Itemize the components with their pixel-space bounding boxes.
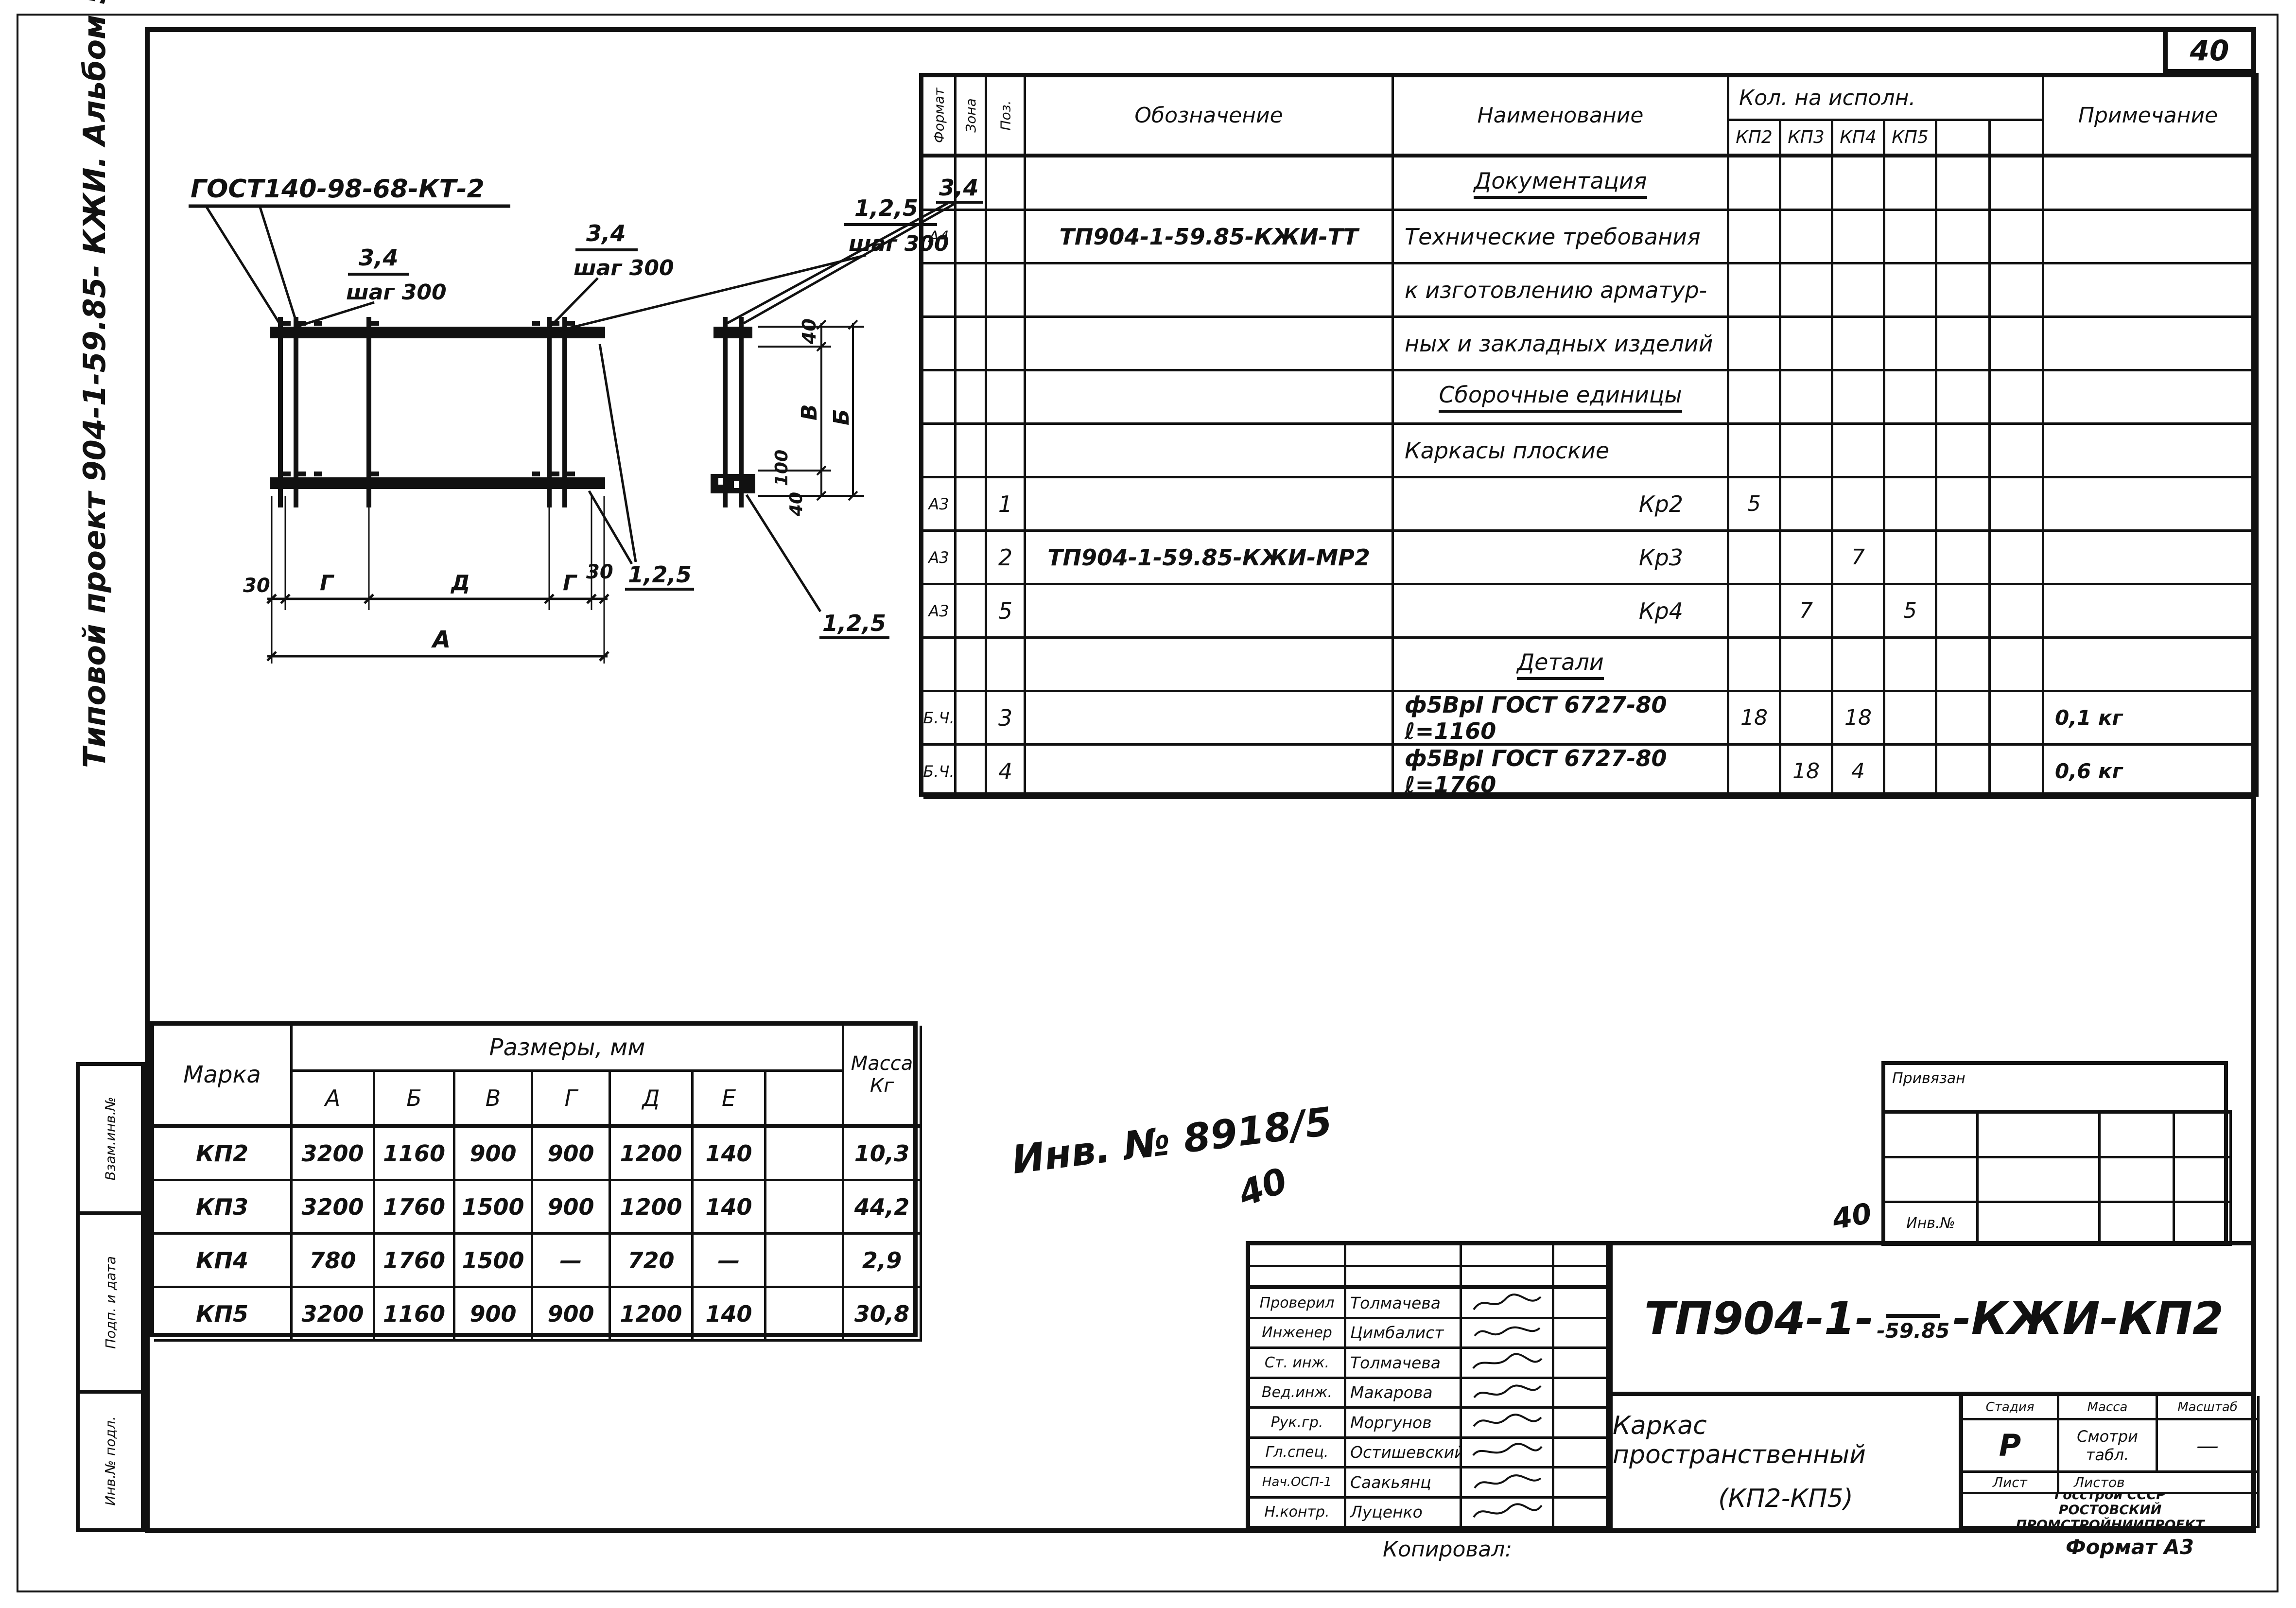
signature-table: Проверил Толмачева Инженер Цимбалист Ст.… [1250,1245,1608,1528]
size-cell [766,1128,844,1181]
spec-col-extra2 [1991,121,2044,157]
strip-cell-vzam: Взам.инв.№ [76,1062,145,1215]
page-number-box: 40 [2163,27,2256,74]
size-cell: 1760 [375,1235,455,1288]
bottom-chord-bar [270,477,605,489]
spec-designation-mr2: ТП904-1-59.85-КЖИ-МР2 [1026,532,1394,585]
size-cell: 1200 [611,1181,694,1235]
size-cell-mass: 2,9 [844,1235,922,1288]
copied-by-label: Копировал: [1383,1537,1512,1562]
stamp-right-grid: Стадия Масса Масштаб Р Смотритабл. — Лис… [1959,1396,2255,1528]
size-cell: 1160 [375,1128,455,1181]
spec-col-kp5: КП5 [1885,121,1937,157]
size-cell-mass: 10,3 [844,1128,922,1181]
callout-step-a: шаг 300 [346,280,447,305]
spec-name: Каркасы плоские [1394,425,1729,478]
spec-name: Кр4 [1394,585,1729,639]
callout-125-left: 1,2,5 [628,561,692,588]
signer-role: Ст. инж. [1250,1349,1346,1379]
dim-40-bottom: 40 [786,492,806,517]
spec-note: 0,6 кг [2044,746,2254,799]
designation-subscript: -59.85 [1877,1314,1949,1343]
stage-label: Стадия [1963,1396,2059,1420]
dim-40-top: 40 [799,318,820,345]
signer-name: Толмачева [1346,1349,1462,1379]
signer-role: Рук.гр. [1250,1409,1346,1439]
spec-qty-kp4: 7 [1833,532,1885,585]
signer-role: Проверил [1250,1289,1346,1319]
spec-name: ф5ВрI ГОСТ 6727-80 ℓ=1760 [1394,746,1729,799]
spec-pos: 1 [987,478,1026,532]
spec-designation-tt: ТП904-1-59.85-КЖИ-ТТ [1026,211,1394,264]
sizes-col-mark: Марка [154,1026,293,1128]
size-row-mark: КП4 [154,1235,293,1288]
spec-pos: 5 [987,585,1026,639]
signer-role: Нач.ОСП-1 [1250,1468,1346,1499]
spec-col-kp3: КП3 [1781,121,1833,157]
size-cell: 720 [611,1235,694,1288]
sizes-dim-d: Д [611,1072,694,1128]
dim-d: Д [450,571,470,595]
size-cell: 780 [293,1235,375,1288]
dim-30-left: 30 [243,575,270,597]
size-cell: — [533,1235,611,1288]
spec-fmt: Б.Ч. [923,746,957,799]
dim-v: В [797,404,822,420]
size-row-mark: КП3 [154,1181,293,1235]
sizes-dim-v: В [455,1072,533,1128]
spec-col-kp4: КП4 [1833,121,1885,157]
size-cell: 1760 [375,1181,455,1235]
size-cell: 1200 [611,1128,694,1181]
sizes-dim-e: Е [694,1072,766,1128]
spec-fmt: А3 [923,532,957,585]
spec-name: Кр3 [1394,532,1729,585]
sheet-label: Лист [1963,1473,2059,1494]
mass-value: Смотритабл. [2059,1420,2158,1473]
pinned-table: Привязан Инв.№ [1881,1061,2228,1246]
spec-pos: 4 [987,746,1026,799]
section-top-bar [713,327,752,338]
signature-icon [1462,1409,1554,1439]
signer-role: Вед.инж. [1250,1379,1346,1409]
size-cell: 140 [694,1288,766,1342]
scale-value: — [2158,1420,2260,1473]
spec-name: Технические требования [1394,211,1729,264]
spec-col-format: Формат [923,77,957,157]
size-cell [766,1288,844,1342]
spec-col-kp2: КП2 [1729,121,1781,157]
signer-role: Н.контр. [1250,1499,1346,1529]
spec-col-name: Наименование [1394,77,1729,157]
sizes-col-sizes: Размеры, мм [293,1026,844,1072]
size-cell-mass: 30,8 [844,1288,922,1342]
designation-suffix: -КЖИ-КП2 [1953,1293,2224,1345]
size-cell: 3200 [293,1128,375,1181]
callout-bars-125: 1,2,5 [854,195,918,221]
spec-col-note: Примечание [2044,77,2254,157]
specification-table: Формат Зона Поз. Обозначение Наименовани… [919,73,2259,797]
spec-qty-kp3: 7 [1781,585,1833,639]
spec-qty-kp3: 18 [1781,746,1833,799]
spec-col-extra1 [1937,121,1991,157]
organization-name: Госстрой СССР РОСТОВСКИЙ ПРОМСТРОЙНИИПРО… [1963,1494,2260,1528]
size-cell: 900 [533,1288,611,1342]
sizes-dim-b: Б [375,1072,455,1128]
signer-name: Луценко [1346,1499,1462,1529]
signer-name: Саакьянц [1346,1468,1462,1499]
dim-a: А [431,626,451,653]
spec-col-qty: Кол. на исполн. [1729,77,2044,121]
spec-qty-kp2: 5 [1729,478,1781,532]
spec-section-details: Детали [1394,639,1729,692]
spec-qty-kp4: 18 [1833,692,1885,746]
spec-col-designation: Обозначение [1026,77,1394,157]
section-bottom-bar [711,474,755,493]
pinned-title: Привязан [1885,1065,2232,1114]
spec-name: ных и закладных изделий [1394,318,1729,371]
title-line-2: (КП2-КП5) [1718,1484,1853,1513]
sizes-dim-g: Г [533,1072,611,1128]
document-designation: ТП904-1- -59.85 -КЖИ-КП2 [1608,1245,2255,1396]
signature-icon [1462,1439,1554,1469]
page-number: 40 [2190,34,2229,67]
pinned-inv-label: Инв.№ [1885,1203,1979,1246]
scale-label: Масштаб [2158,1396,2260,1420]
size-row-mark: КП5 [154,1288,293,1342]
spec-qty-kp2: 18 [1729,692,1781,746]
signer-name: Макарова [1346,1379,1462,1409]
spec-col-zone: Зона [957,77,987,157]
reinforcement-cage-drawing: ГОСТ140-98-68-КТ-2 3,4 шаг 300 3,4 шаг 3… [170,156,1026,700]
sizes-col-mass: МассаКг [844,1026,922,1128]
signer-name: Цимбалист [1346,1319,1462,1349]
callout-step-b: шаг 300 [574,256,674,280]
strip-cell-inv: Инв.№ подл. [76,1394,145,1532]
size-cell [766,1181,844,1235]
pinned-handwritten-40: 40 [1830,1197,1874,1236]
size-cell: 900 [455,1128,533,1181]
cross-wire-marks [283,321,575,476]
spec-qty-kp5: 5 [1885,585,1937,639]
size-cell: 900 [533,1181,611,1235]
designation-prefix: ТП904-1- [1644,1293,1874,1345]
spec-note: 0,1 кг [2044,692,2254,746]
spec-section-docs: Документация [1394,157,1729,211]
signature-icon [1462,1349,1554,1379]
signature-icon [1462,1499,1554,1529]
size-cell: 1500 [455,1235,533,1288]
dim-g-right: Г [563,571,577,595]
spec-name: ф5ВрI ГОСТ 6727-80 ℓ=1160 [1394,692,1729,746]
top-chord-bar [270,327,605,338]
spec-pos: 3 [987,692,1026,746]
spec-pos: 2 [987,532,1026,585]
size-row-mark: КП2 [154,1128,293,1181]
spec-fmt: А3 [923,585,957,639]
size-cell: 140 [694,1181,766,1235]
callout-bars-34-b: 3,4 [586,220,626,246]
size-cell: 1200 [611,1288,694,1342]
signature-icon [1462,1379,1554,1409]
size-cell [766,1235,844,1288]
spec-fmt: А3 [923,478,957,532]
spec-name: к изготовлению арматур- [1394,264,1729,318]
size-cell: 1500 [455,1181,533,1235]
size-cell: 1160 [375,1288,455,1342]
dimensions-table: Марка Размеры, мм МассаКг А Б В Г Д Е КП… [150,1021,918,1337]
left-strip: Взам.инв.№ Подп. и дата Инв.№ подл. [76,1062,145,1532]
dim-g-left: Г [320,571,334,595]
strip-cell-podp: Подп. и дата [76,1215,145,1394]
callout-125-right: 1,2,5 [822,610,886,636]
sizes-dim-a: А [293,1072,375,1128]
mass-label: Масса [2059,1396,2158,1420]
size-cell: 3200 [293,1288,375,1342]
spec-fmt: А4 [923,211,957,264]
signature-icon [1462,1319,1554,1349]
spec-qty-kp4: 4 [1833,746,1885,799]
gost-weld-label: ГОСТ140-98-68-КТ-2 [191,175,485,204]
spec-col-pos: Поз. [987,77,1026,157]
signer-role: Гл.спец. [1250,1439,1346,1469]
size-cell: 900 [533,1128,611,1181]
dim-100: 100 [772,450,792,486]
title-block: Проверил Толмачева Инженер Цимбалист Ст.… [1246,1241,2255,1533]
size-cell: — [694,1235,766,1288]
title-line-1: Каркас пространственный [1613,1411,1959,1469]
drawing-title: Каркас пространственный (КП2-КП5) [1608,1396,1959,1528]
signer-name: Моргунов [1346,1409,1462,1439]
spec-name: Кр2 [1394,478,1729,532]
signature-icon [1462,1289,1554,1319]
stage-value: Р [1963,1420,2059,1473]
sizes-dim-extra [766,1072,844,1128]
spec-fmt: Б.Ч. [923,692,957,746]
spec-section-units: Сборочные единицы [1394,371,1729,425]
size-cell-mass: 44,2 [844,1181,922,1235]
format-label: Формат А3 [2066,1535,2194,1559]
dim-b: Б [829,409,854,425]
margin-project-label: Типовой проект 904-1-59.85- КЖИ. Альбом … [77,39,112,768]
callout-bars-34-a: 3,4 [359,245,399,271]
signer-role: Инженер [1250,1319,1346,1349]
drawing-sheet: 40 Типовой проект 904-1-59.85- КЖИ. Альб… [0,0,2296,1608]
dim-30-right: 30 [586,561,613,583]
size-cell: 3200 [293,1181,375,1235]
signer-name: Толмачева [1346,1289,1462,1319]
size-cell: 140 [694,1128,766,1181]
signature-icon [1462,1468,1554,1499]
size-cell: 900 [455,1288,533,1342]
sheets-label: Листов [2059,1473,2260,1494]
signer-name: Остишевский [1346,1439,1462,1469]
